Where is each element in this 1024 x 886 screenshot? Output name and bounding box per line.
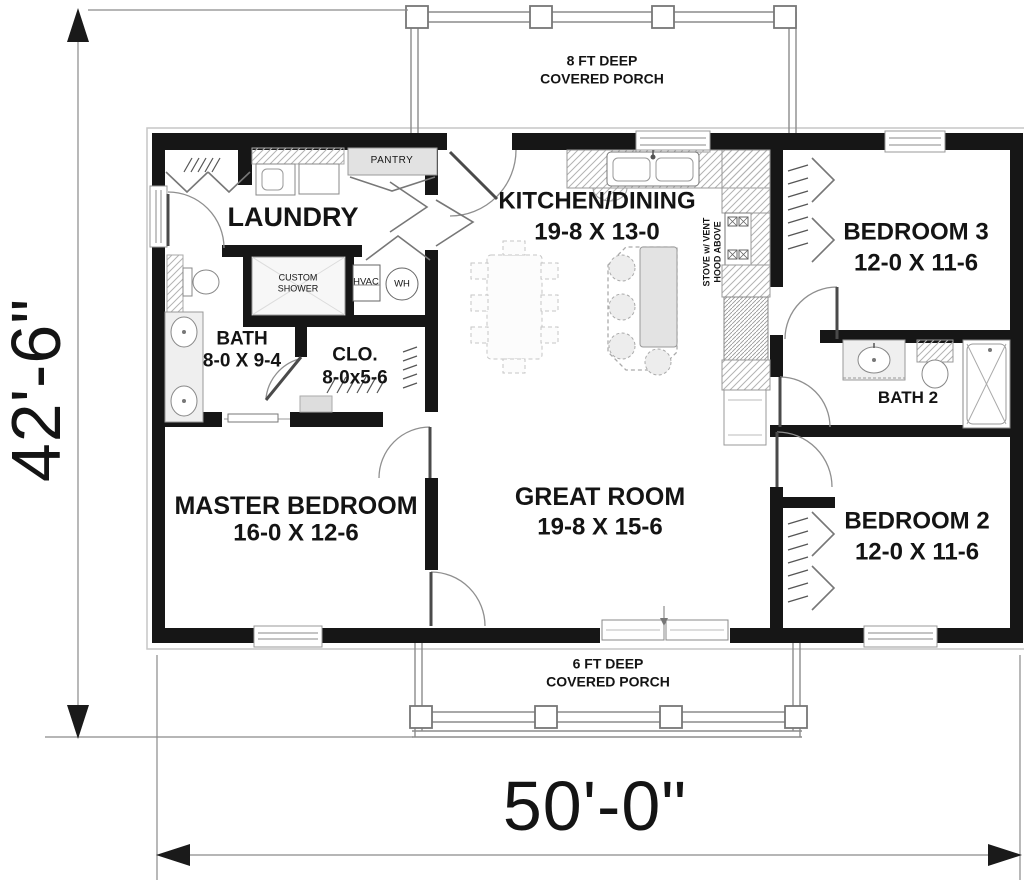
laundry-counter	[252, 148, 344, 164]
hvac-label: HVAC	[353, 276, 379, 287]
shelf	[917, 340, 953, 362]
wall-segment	[730, 628, 868, 643]
bath2-fixtures	[843, 340, 1010, 428]
wall-segment	[770, 497, 835, 508]
wall-segment	[290, 412, 383, 427]
custom-shower-label: CUSTOM SHOWER	[272, 272, 324, 293]
dryer	[299, 164, 339, 194]
wall-segment	[1010, 133, 1023, 643]
room-dims-bath: 8-0 X 9-4	[203, 351, 281, 374]
floor-plan: LAUNDRY KITCHEN/DINING 19-8 X 13-0 BEDRO…	[0, 0, 1024, 886]
wall-segment	[770, 487, 783, 628]
master-window	[254, 626, 322, 647]
pantry-label: PANTRY	[371, 155, 414, 167]
wall-segment	[238, 150, 252, 185]
kitchen-sink	[607, 150, 699, 186]
wall-segment	[243, 257, 252, 315]
room-label-bath: BATH	[216, 329, 267, 352]
porch-top-label-line1: 8 FT DEEP	[567, 53, 638, 70]
stove	[725, 213, 751, 265]
porch-posts	[410, 706, 807, 728]
vanity	[843, 340, 905, 380]
counter-segment	[751, 213, 770, 265]
wall-segment	[425, 478, 438, 570]
porch-bottom-label-line1: 6 FT DEEP	[573, 656, 644, 673]
wall-segment	[318, 628, 600, 643]
wall-segment	[243, 315, 438, 327]
refrigerator	[724, 297, 768, 360]
room-dims-bedroom2: 12-0 X 11-6	[855, 539, 979, 568]
toilet	[183, 268, 219, 296]
porch-bottom-label-line2: COVERED PORCH	[546, 674, 670, 691]
room-dims-master: 16-0 X 12-6	[233, 520, 358, 549]
dining-table	[471, 241, 558, 373]
bedroom3-window	[885, 131, 945, 152]
toilet	[922, 360, 948, 388]
wall-segment	[152, 133, 165, 190]
bedroom2-window	[864, 626, 937, 647]
overall-depth-dimension: 42'-6"	[0, 298, 78, 482]
linen-shelf	[167, 255, 183, 312]
room-label-master: MASTER BEDROOM	[174, 491, 417, 521]
wall-oven	[724, 390, 766, 445]
room-dims-closet: 8-0x5-6	[322, 368, 388, 391]
wall-segment	[425, 250, 438, 412]
wall-segment	[933, 628, 1023, 643]
laundry-window	[150, 186, 167, 247]
room-dims-kitchen: 19-8 X 13-0	[534, 219, 659, 248]
wall-segment	[152, 243, 165, 643]
kitchen-window	[636, 131, 710, 152]
wall-segment	[512, 133, 640, 150]
room-dims-great-room: 19-8 X 15-6	[537, 514, 662, 543]
great-room-french-doors	[602, 606, 728, 640]
wall-segment	[222, 245, 362, 257]
porch-top-label-line2: COVERED PORCH	[540, 71, 664, 88]
counter-segment	[722, 360, 770, 390]
wall-segment	[295, 327, 307, 357]
island-counter	[640, 247, 677, 347]
room-label-bedroom2: BEDROOM 2	[844, 508, 989, 537]
room-label-laundry: LAUNDRY	[228, 201, 359, 233]
porch-posts	[406, 6, 796, 28]
pocket-door	[224, 414, 290, 422]
counter-segment	[722, 265, 770, 297]
room-label-bedroom3: BEDROOM 3	[843, 219, 988, 248]
wall-segment	[152, 133, 447, 150]
room-label-closet: CLO.	[332, 345, 377, 368]
wall-segment	[152, 628, 258, 643]
wall-segment	[770, 150, 783, 287]
stove-note-label: STOVE w/ VENT HOOD ABOVE	[701, 208, 722, 296]
floor-plan-drawing	[0, 0, 1024, 886]
water-heater-label: WH	[394, 278, 410, 289]
room-label-great-room: GREAT ROOM	[515, 482, 685, 512]
kitchen-island	[608, 247, 677, 375]
counter-segment	[722, 150, 770, 213]
wall-segment	[706, 133, 889, 150]
wall-segment	[770, 335, 783, 377]
closet-bench	[300, 396, 332, 412]
room-dims-bedroom3: 12-0 X 11-6	[854, 250, 978, 279]
room-label-kitchen: KITCHEN/DINING	[498, 188, 695, 217]
room-label-bath2: BATH 2	[878, 388, 938, 408]
porch-top	[406, 6, 796, 133]
double-vanity	[165, 312, 203, 422]
overall-width-dimension: 50'-0"	[503, 764, 687, 848]
tub	[963, 340, 1010, 428]
